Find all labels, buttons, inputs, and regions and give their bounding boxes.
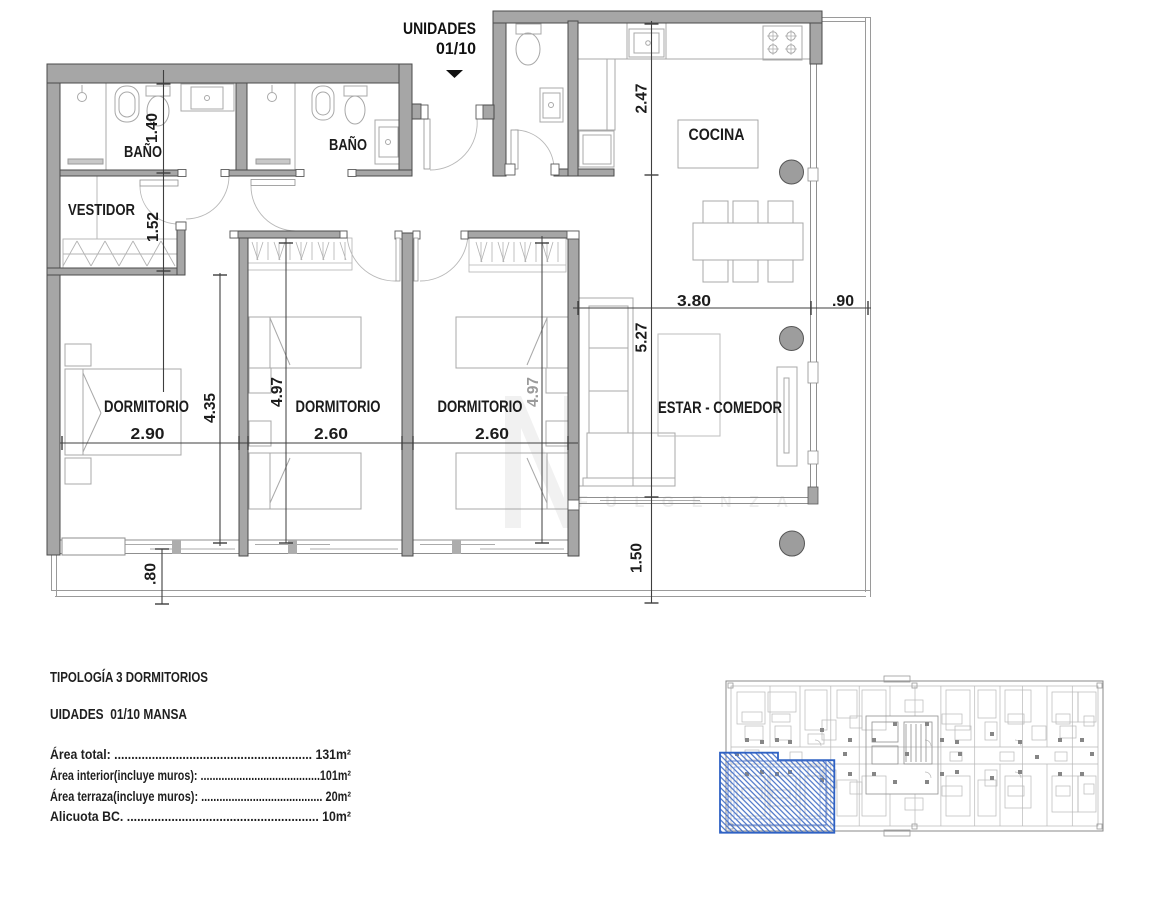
svg-text:2.60: 2.60 xyxy=(475,426,509,443)
svg-text:COCINA: COCINA xyxy=(689,126,745,144)
svg-text:3.80: 3.80 xyxy=(677,293,711,310)
svg-text:5.27: 5.27 xyxy=(634,323,651,353)
svg-text:BAÑO: BAÑO xyxy=(329,136,367,154)
svg-text:2.47: 2.47 xyxy=(634,84,651,114)
svg-text:Alicuota BC. .................: Alicuota BC. ...........................… xyxy=(50,809,351,824)
svg-text:01/10: 01/10 xyxy=(436,39,476,58)
svg-text:4.97: 4.97 xyxy=(525,377,542,407)
svg-text:2.90: 2.90 xyxy=(131,426,165,443)
svg-text:.80: .80 xyxy=(143,563,160,585)
svg-text:DORMITORIO: DORMITORIO xyxy=(438,398,523,416)
svg-text:BAÑO: BAÑO xyxy=(124,143,162,161)
svg-text:.90: .90 xyxy=(832,293,854,310)
svg-text:1.40: 1.40 xyxy=(144,113,161,143)
svg-text:4.97: 4.97 xyxy=(269,377,286,407)
svg-text:DORMITORIO: DORMITORIO xyxy=(104,398,189,416)
svg-text:TIPOLOGÍA 3 DORMITORIOS: TIPOLOGÍA 3 DORMITORIOS xyxy=(50,669,208,686)
svg-text:Área total: ..................: Área total: ............................… xyxy=(50,747,351,762)
svg-text:4.35: 4.35 xyxy=(202,393,219,423)
svg-text:2.60: 2.60 xyxy=(314,426,348,443)
svg-text:UNIDADES: UNIDADES xyxy=(403,19,476,38)
svg-text:UIDADES 01/10 MANSA: UIDADES 01/10 MANSA xyxy=(50,707,187,723)
svg-text:Área interior(incluye muros):: Área interior(incluye muros): ..........… xyxy=(50,768,351,783)
svg-text:1.52: 1.52 xyxy=(145,212,162,242)
svg-text:1.50: 1.50 xyxy=(629,543,646,573)
svg-text:VESTIDOR: VESTIDOR xyxy=(68,202,135,219)
svg-text:Área terraza(incluye muros): .: Área terraza(incluye muros): ...........… xyxy=(50,789,351,804)
svg-text:ESTAR - COMEDOR: ESTAR - COMEDOR xyxy=(658,399,782,417)
svg-text:DORMITORIO: DORMITORIO xyxy=(296,398,381,416)
